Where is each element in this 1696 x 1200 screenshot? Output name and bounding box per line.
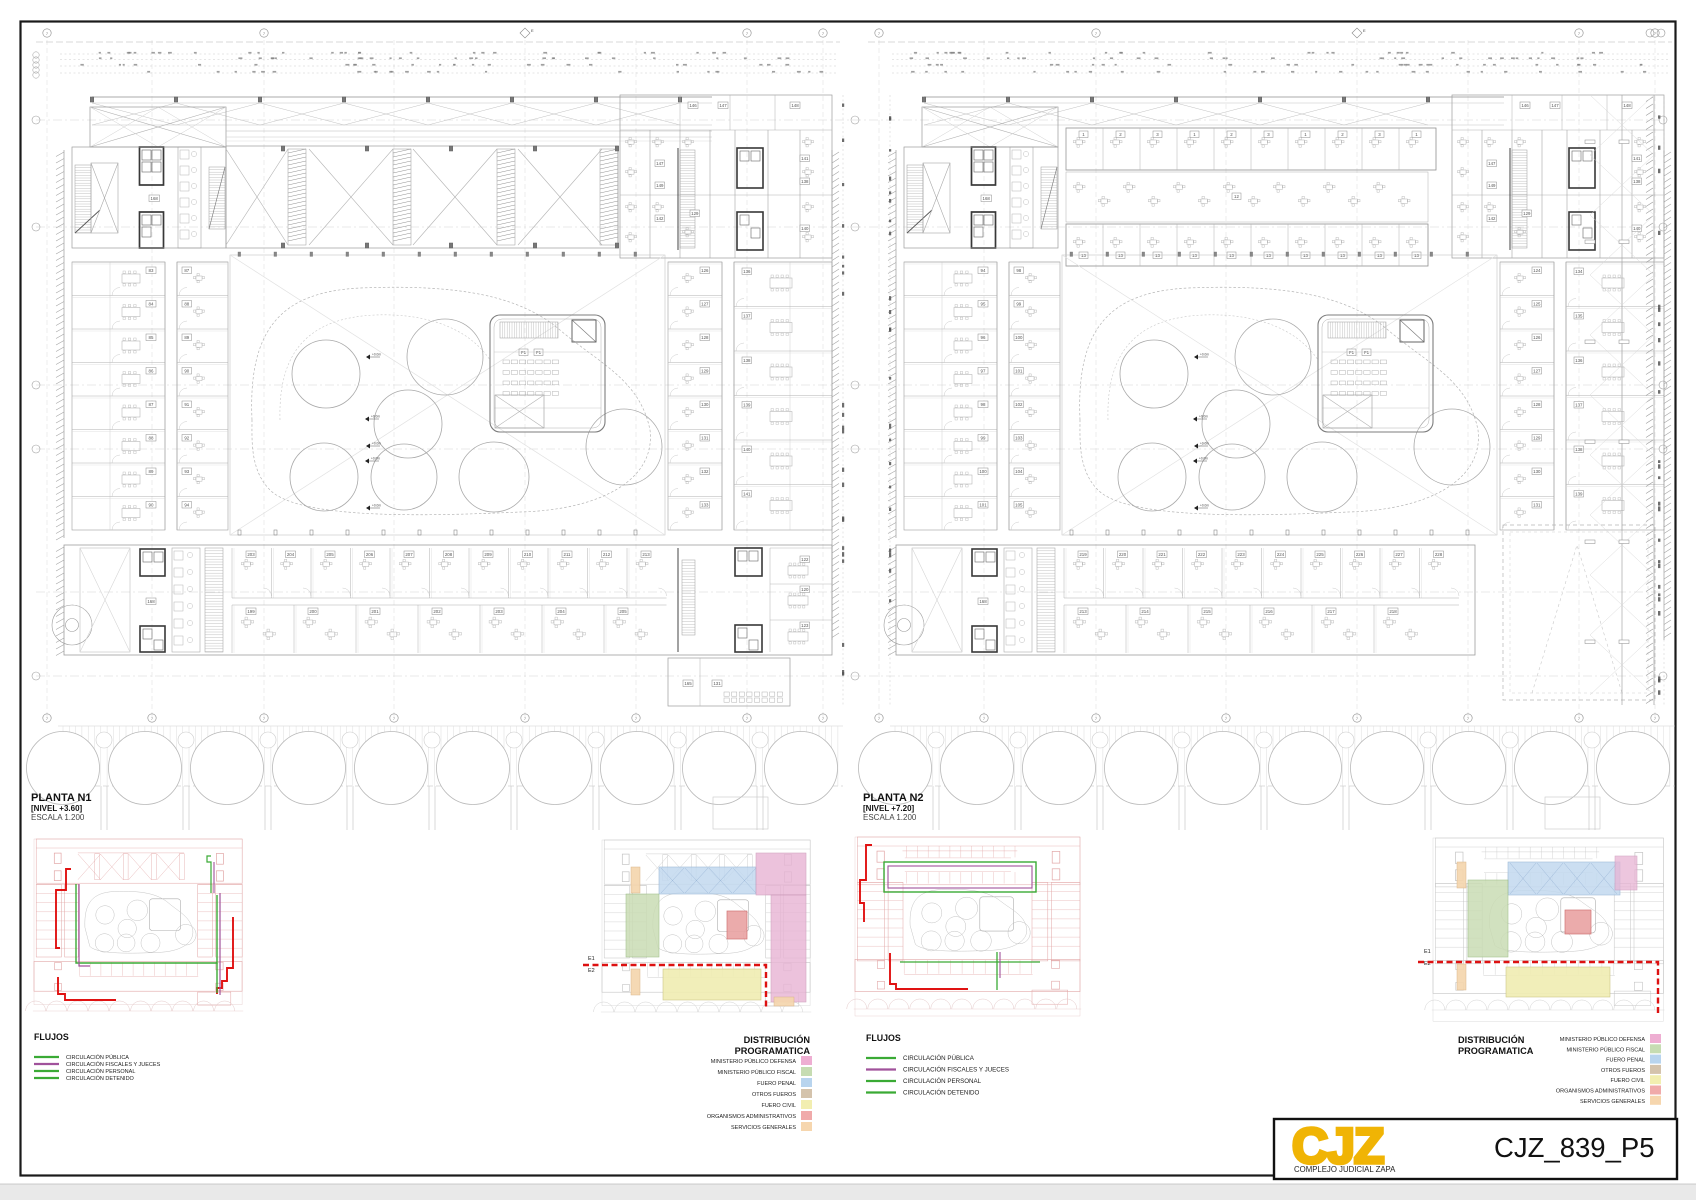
svg-text:204: 204 <box>287 552 295 557</box>
svg-text:141: 141 <box>1633 156 1641 161</box>
svg-text:E: E <box>531 28 534 33</box>
svg-text:126: 126 <box>1533 335 1541 340</box>
svg-text:148: 148 <box>791 103 799 108</box>
svg-text:CIRCULACIÓN FISCALES Y JUECES: CIRCULACIÓN FISCALES Y JUECES <box>66 1061 161 1068</box>
svg-text:100: 100 <box>1015 335 1023 340</box>
svg-text:OTROS FUEROS: OTROS FUEROS <box>752 1092 796 1098</box>
svg-text:+0.0m: +0.0m <box>1200 353 1209 357</box>
svg-text:PROGRAMATICA: PROGRAMATICA <box>1458 1046 1534 1056</box>
svg-text:203: 203 <box>495 609 503 614</box>
svg-text:165: 165 <box>684 681 692 686</box>
svg-text:203: 203 <box>247 552 255 557</box>
svg-text:141: 141 <box>801 156 809 161</box>
svg-text:+0.0m: +0.0m <box>372 504 381 508</box>
svg-text:ORGANISMOS ADMINISTRATIVOS: ORGANISMOS ADMINISTRATIVOS <box>707 1114 796 1120</box>
svg-text:FLUJOS: FLUJOS <box>866 1033 901 1043</box>
svg-text:201: 201 <box>371 609 379 614</box>
svg-text:204: 204 <box>557 609 565 614</box>
svg-text:PLANTA N1: PLANTA N1 <box>31 792 92 804</box>
svg-text:100: 100 <box>979 469 987 474</box>
svg-text:FUERO PENAL: FUERO PENAL <box>1606 1058 1645 1064</box>
svg-text:221: 221 <box>1158 552 1166 557</box>
svg-text:133: 133 <box>701 503 709 508</box>
svg-text:90: 90 <box>149 503 154 508</box>
svg-text:135: 135 <box>1575 314 1583 319</box>
svg-text:13: 13 <box>1377 253 1382 258</box>
svg-text:88: 88 <box>184 302 189 307</box>
svg-text:199: 199 <box>247 609 255 614</box>
svg-text:89: 89 <box>149 469 154 474</box>
svg-text:83: 83 <box>149 268 154 273</box>
svg-text:FUERO CIVIL: FUERO CIVIL <box>1610 1078 1645 1084</box>
svg-text:125: 125 <box>1533 302 1541 307</box>
svg-text:140: 140 <box>743 447 751 452</box>
svg-text:147: 147 <box>719 103 727 108</box>
svg-text:129: 129 <box>1523 211 1531 216</box>
svg-text:138: 138 <box>1633 179 1641 184</box>
svg-text:223: 223 <box>1237 552 1245 557</box>
svg-text:FUERO CIVIL: FUERO CIVIL <box>761 1103 796 1109</box>
svg-text:95: 95 <box>981 302 986 307</box>
svg-text:13: 13 <box>1414 253 1419 258</box>
svg-text:101: 101 <box>979 503 987 508</box>
svg-text:142: 142 <box>656 216 664 221</box>
svg-text:168: 168 <box>151 196 159 201</box>
svg-text:224: 224 <box>1277 552 1285 557</box>
svg-text:225: 225 <box>1316 552 1324 557</box>
svg-text:87: 87 <box>184 268 189 273</box>
svg-text:105: 105 <box>1015 503 1023 508</box>
svg-text:216: 216 <box>1265 609 1273 614</box>
svg-text:104: 104 <box>1015 469 1023 474</box>
svg-text:MINISTERIO PÚBLICO FISCAL: MINISTERIO PÚBLICO FISCAL <box>717 1069 796 1076</box>
svg-text:93: 93 <box>184 469 189 474</box>
svg-text:137: 137 <box>743 314 751 319</box>
svg-text:103: 103 <box>1015 436 1023 441</box>
svg-text:138: 138 <box>801 179 809 184</box>
svg-text:FLUJOS: FLUJOS <box>34 1032 69 1042</box>
svg-text:136: 136 <box>1575 358 1583 363</box>
svg-text:124: 124 <box>1533 268 1541 273</box>
svg-text:213: 213 <box>1079 609 1087 614</box>
svg-text:CIRCULACIÓN PÚBLICA: CIRCULACIÓN PÚBLICA <box>66 1054 129 1061</box>
svg-text:127: 127 <box>1533 369 1541 374</box>
svg-text:12: 12 <box>1234 194 1239 199</box>
svg-text:+0.0m: +0.0m <box>372 442 381 446</box>
svg-text:213: 213 <box>642 552 650 557</box>
svg-text:139: 139 <box>743 403 751 408</box>
svg-text:101: 101 <box>1015 369 1023 374</box>
svg-text:ESCALA 1.200: ESCALA 1.200 <box>863 813 917 822</box>
svg-text:226: 226 <box>1356 552 1364 557</box>
svg-text:PROGRAMATICA: PROGRAMATICA <box>735 1046 811 1056</box>
svg-text:147: 147 <box>1488 161 1496 166</box>
svg-text:217: 217 <box>1327 609 1335 614</box>
svg-text:CIRCULACIÓN FISCALES Y JUECES: CIRCULACIÓN FISCALES Y JUECES <box>903 1067 1009 1074</box>
svg-text:168: 168 <box>147 599 155 604</box>
svg-text:146: 146 <box>689 103 697 108</box>
svg-text:210: 210 <box>524 552 532 557</box>
svg-text:+0.0m: +0.0m <box>371 457 380 461</box>
svg-text:138: 138 <box>1575 447 1583 452</box>
svg-text:128: 128 <box>1533 402 1541 407</box>
svg-text:90: 90 <box>184 369 189 374</box>
svg-text:131: 131 <box>713 681 721 686</box>
svg-text:138: 138 <box>743 358 751 363</box>
svg-text:+0.0m: +0.0m <box>372 353 381 357</box>
svg-text:137: 137 <box>1575 403 1583 408</box>
svg-text:85: 85 <box>149 335 154 340</box>
svg-text:211: 211 <box>564 552 572 557</box>
svg-text:209: 209 <box>484 552 492 557</box>
svg-text:148: 148 <box>1623 103 1631 108</box>
svg-text:CIRCULACIÓN PERSONAL: CIRCULACIÓN PERSONAL <box>66 1068 135 1075</box>
svg-text:122: 122 <box>801 557 809 562</box>
svg-text:205: 205 <box>326 552 334 557</box>
svg-text:131: 131 <box>701 436 709 441</box>
svg-text:207: 207 <box>405 552 413 557</box>
svg-text:92: 92 <box>184 436 189 441</box>
svg-text:219: 219 <box>1079 552 1087 557</box>
svg-text:CIRCULACIÓN PÚBLICA: CIRCULACIÓN PÚBLICA <box>903 1055 975 1062</box>
svg-text:222: 222 <box>1198 552 1206 557</box>
svg-text:DISTRIBUCIÓN: DISTRIBUCIÓN <box>744 1034 811 1045</box>
svg-text:[NIVEL +3.60]: [NIVEL +3.60] <box>31 804 83 813</box>
svg-text:ESCALA 1.200: ESCALA 1.200 <box>31 813 85 822</box>
svg-text:FUERO PENAL: FUERO PENAL <box>757 1081 796 1087</box>
svg-text:CJZ_839_P5: CJZ_839_P5 <box>1494 1132 1655 1163</box>
svg-text:141: 141 <box>743 492 751 497</box>
svg-text:ORGANISMOS ADMINISTRATIVOS: ORGANISMOS ADMINISTRATIVOS <box>1556 1089 1645 1095</box>
svg-text:+0.0m: +0.0m <box>371 415 380 419</box>
svg-text:91: 91 <box>184 402 189 407</box>
svg-text:127: 127 <box>701 302 709 307</box>
svg-text:205: 205 <box>619 609 627 614</box>
svg-text:136: 136 <box>743 269 751 274</box>
svg-text:89: 89 <box>184 335 189 340</box>
svg-text:168: 168 <box>979 599 987 604</box>
svg-text:126: 126 <box>701 268 709 273</box>
svg-text:134: 134 <box>1575 269 1583 274</box>
svg-text:97: 97 <box>981 369 986 374</box>
svg-text:CIRCULACIÓN DETENIDO: CIRCULACIÓN DETENIDO <box>903 1090 980 1097</box>
svg-text:214: 214 <box>1141 609 1149 614</box>
svg-text:E1: E1 <box>588 956 595 962</box>
svg-text:SERVICIOS GENERALES: SERVICIOS GENERALES <box>731 1125 796 1131</box>
svg-text:146: 146 <box>1521 103 1529 108</box>
svg-text:+0.0m: +0.0m <box>1199 457 1208 461</box>
svg-text:13: 13 <box>1118 253 1123 258</box>
svg-text:96: 96 <box>981 335 986 340</box>
svg-text:132: 132 <box>701 469 709 474</box>
svg-text:13: 13 <box>1081 253 1086 258</box>
svg-text:129: 129 <box>701 369 709 374</box>
svg-text:149: 149 <box>656 183 664 188</box>
svg-text:142: 142 <box>1488 216 1496 221</box>
svg-text:13: 13 <box>1155 253 1160 258</box>
svg-text:123: 123 <box>801 623 809 628</box>
svg-text:13: 13 <box>1192 253 1197 258</box>
svg-text:COMPLEJO JUDICIAL ZAPA: COMPLEJO JUDICIAL ZAPA <box>1294 1165 1396 1174</box>
svg-text:228: 228 <box>1435 552 1443 557</box>
svg-text:131: 131 <box>1533 503 1541 508</box>
svg-text:94: 94 <box>184 503 189 508</box>
svg-text:129: 129 <box>1533 436 1541 441</box>
svg-text:98: 98 <box>981 402 986 407</box>
svg-text:E1: E1 <box>1424 949 1431 955</box>
svg-text:140: 140 <box>801 226 809 231</box>
svg-text:13: 13 <box>1266 253 1271 258</box>
svg-text:CIRCULACIÓN DETENIDO: CIRCULACIÓN DETENIDO <box>66 1075 135 1082</box>
svg-text:147: 147 <box>656 161 664 166</box>
svg-text:220: 220 <box>1119 552 1127 557</box>
svg-text:13: 13 <box>1340 253 1345 258</box>
svg-text:168: 168 <box>983 196 991 201</box>
svg-text:+0.0m: +0.0m <box>1199 415 1208 419</box>
svg-text:F1: F1 <box>521 350 527 355</box>
svg-text:130: 130 <box>1533 469 1541 474</box>
svg-text:102: 102 <box>1015 402 1023 407</box>
svg-text:+0.0m: +0.0m <box>1200 442 1209 446</box>
svg-text:99: 99 <box>981 436 986 441</box>
svg-text:CIRCULACIÓN PERSONAL: CIRCULACIÓN PERSONAL <box>903 1078 982 1085</box>
svg-text:87: 87 <box>149 402 154 407</box>
svg-text:F1: F1 <box>1364 350 1370 355</box>
svg-text:206: 206 <box>366 552 374 557</box>
svg-text:215: 215 <box>1203 609 1211 614</box>
svg-text:227: 227 <box>1395 552 1403 557</box>
svg-text:99: 99 <box>1016 302 1021 307</box>
svg-text:212: 212 <box>603 552 611 557</box>
svg-text:218: 218 <box>1389 609 1397 614</box>
svg-text:E2: E2 <box>588 968 595 974</box>
svg-text:[NIVEL +7.20]: [NIVEL +7.20] <box>863 804 915 813</box>
svg-text:F1: F1 <box>1349 350 1355 355</box>
svg-text:200: 200 <box>309 609 317 614</box>
svg-text:+0.0m: +0.0m <box>1200 504 1209 508</box>
svg-text:129: 129 <box>691 211 699 216</box>
svg-text:202: 202 <box>433 609 441 614</box>
svg-text:13: 13 <box>1303 253 1308 258</box>
svg-text:MINISTERIO PÚBLICO DEFENSA: MINISTERIO PÚBLICO DEFENSA <box>1560 1036 1646 1043</box>
svg-text:88: 88 <box>149 436 154 441</box>
svg-text:PLANTA N2: PLANTA N2 <box>863 792 924 804</box>
svg-text:208: 208 <box>445 552 453 557</box>
svg-text:147: 147 <box>1551 103 1559 108</box>
svg-text:E: E <box>1363 28 1366 33</box>
svg-text:13: 13 <box>1229 253 1234 258</box>
svg-text:139: 139 <box>1575 492 1583 497</box>
svg-text:OTROS FUEROS: OTROS FUEROS <box>1601 1068 1645 1074</box>
svg-text:120: 120 <box>801 587 809 592</box>
svg-text:94: 94 <box>981 268 986 273</box>
svg-text:DISTRIBUCIÓN: DISTRIBUCIÓN <box>1458 1034 1525 1045</box>
svg-text:F1: F1 <box>536 350 542 355</box>
svg-text:128: 128 <box>701 335 709 340</box>
svg-text:86: 86 <box>149 369 154 374</box>
svg-text:SERVICIOS GENERALES: SERVICIOS GENERALES <box>1580 1099 1645 1105</box>
svg-text:149: 149 <box>1488 183 1496 188</box>
svg-text:84: 84 <box>149 302 154 307</box>
svg-text:MINISTERIO PÚBLICO DEFENSA: MINISTERIO PÚBLICO DEFENSA <box>711 1058 797 1065</box>
svg-text:130: 130 <box>701 402 709 407</box>
svg-text:98: 98 <box>1016 268 1021 273</box>
svg-text:MINISTERIO PÚBLICO FISCAL: MINISTERIO PÚBLICO FISCAL <box>1566 1046 1645 1053</box>
